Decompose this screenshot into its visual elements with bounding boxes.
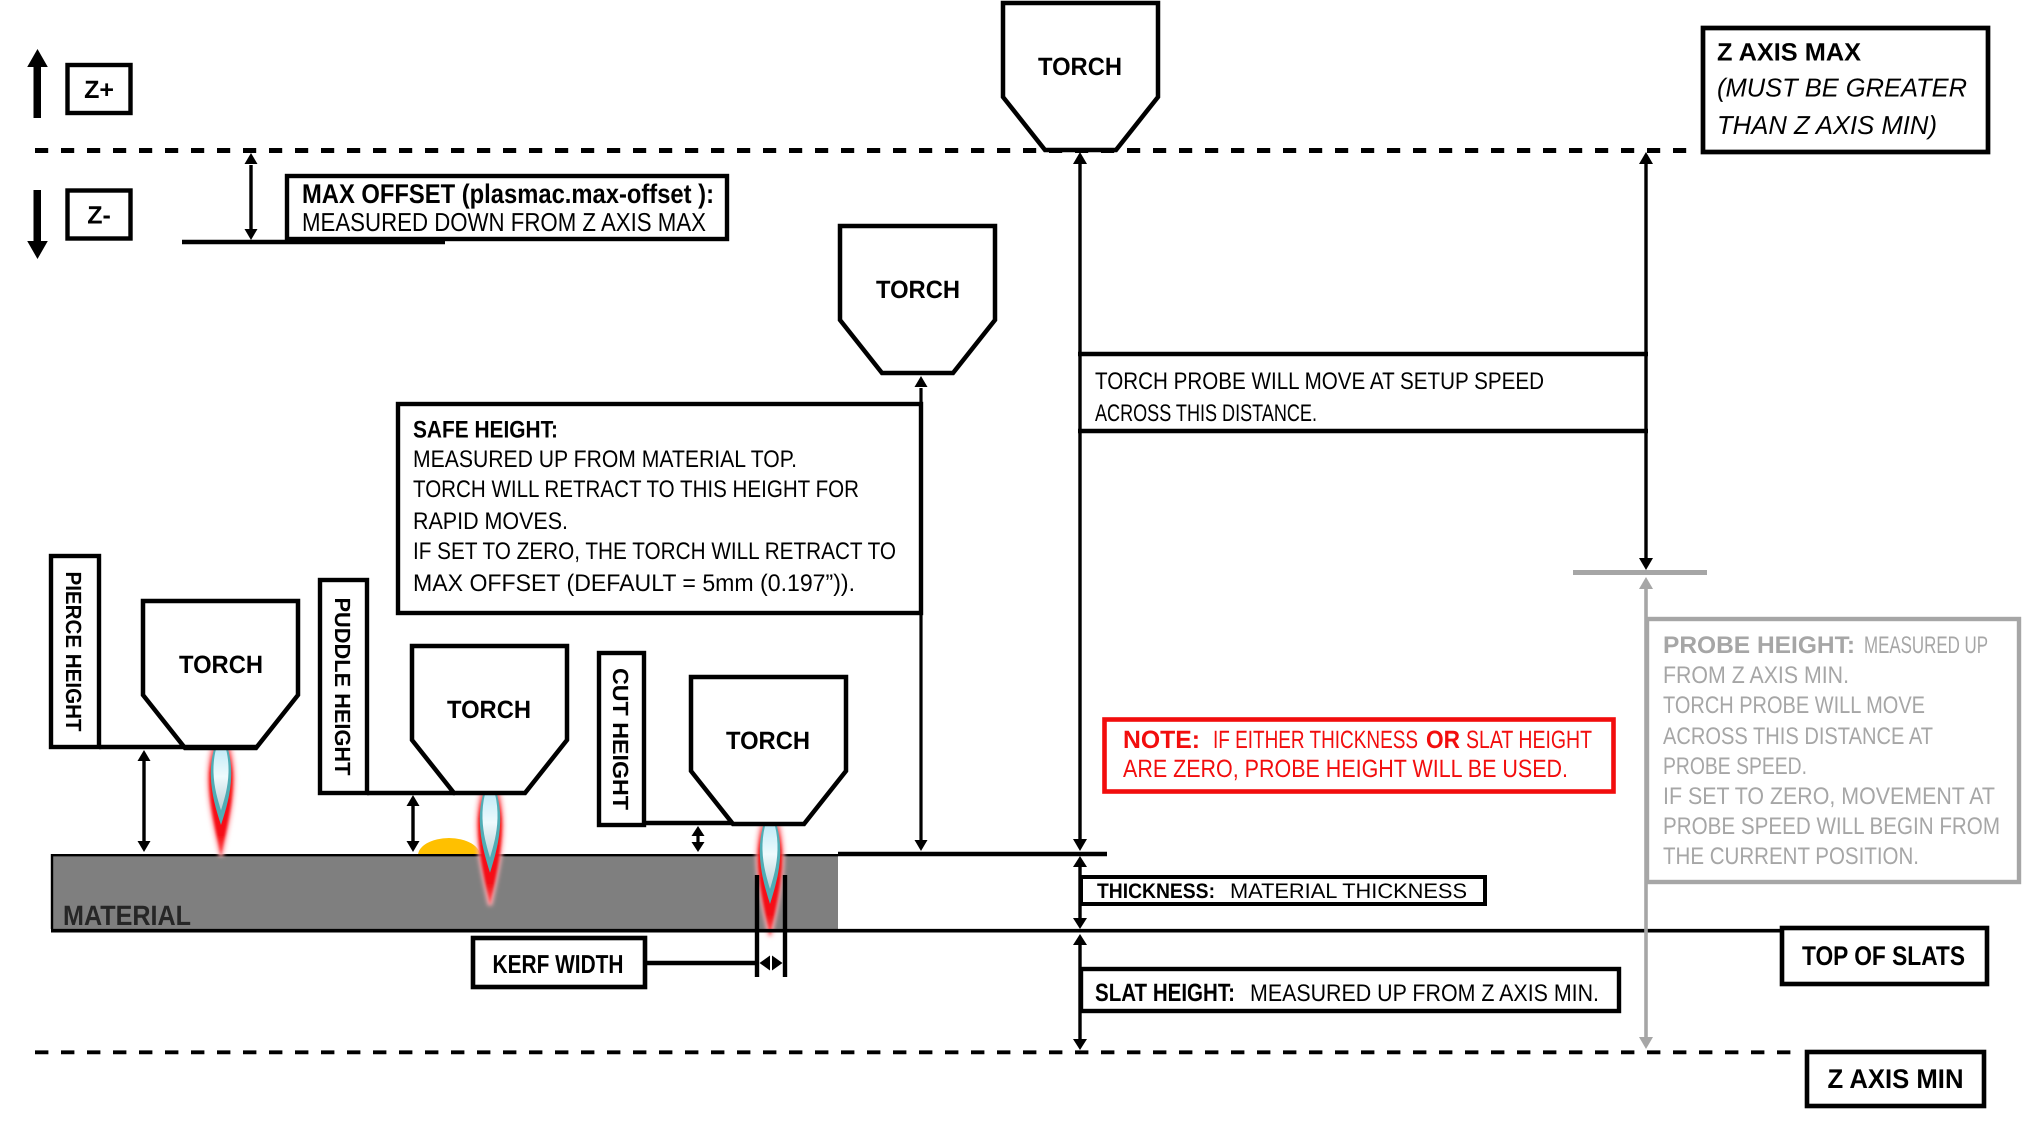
svg-text:TOP OF SLATS: TOP OF SLATS (1802, 941, 1965, 971)
svg-text:ACROSS THIS DISTANCE.: ACROSS THIS DISTANCE. (1095, 400, 1317, 427)
svg-text:FROM Z AXIS MIN.: FROM Z AXIS MIN. (1663, 662, 1849, 689)
svg-text:IF SET TO ZERO, MOVEMENT AT: IF SET TO ZERO, MOVEMENT AT (1663, 783, 1995, 810)
svg-text:SLAT HEIGHT:MEASURED UP FROM Z: SLAT HEIGHT:MEASURED UP FROM Z AXIS MIN. (1095, 979, 1599, 1007)
svg-text:PROBE SPEED WILL BEGIN FROM: PROBE SPEED WILL BEGIN FROM (1663, 813, 2000, 840)
svg-text:PROBE HEIGHT:MEASURED UP: PROBE HEIGHT:MEASURED UP (1663, 632, 1988, 659)
svg-text:PUDDLE HEIGHT: PUDDLE HEIGHT (330, 598, 355, 777)
svg-text:NOTE:IF EITHER THICKNESSORSLAT: NOTE:IF EITHER THICKNESSORSLAT HEIGHT (1123, 726, 1592, 754)
svg-text:RAPID MOVES.: RAPID MOVES. (413, 508, 568, 535)
svg-text:MATERIAL: MATERIAL (63, 900, 191, 931)
svg-text:IF SET TO ZERO, THE TORCH WILL: IF SET TO ZERO, THE TORCH WILL RETRACT T… (413, 538, 896, 565)
svg-text:TORCH PROBE WILL MOVE AT SETUP: TORCH PROBE WILL MOVE AT SETUP SPEED (1095, 368, 1544, 395)
svg-text:ACROSS THIS DISTANCE AT: ACROSS THIS DISTANCE AT (1663, 723, 1933, 750)
svg-text:TORCH: TORCH (179, 651, 263, 679)
svg-text:MEASURED UP FROM MATERIAL TOP.: MEASURED UP FROM MATERIAL TOP. (413, 446, 797, 473)
svg-text:PIERCE HEIGHT: PIERCE HEIGHT (61, 572, 86, 733)
svg-text:TORCH PROBE WILL MOVE: TORCH PROBE WILL MOVE (1663, 692, 1925, 719)
svg-text:TORCH WILL RETRACT TO THIS HEI: TORCH WILL RETRACT TO THIS HEIGHT FOR (413, 476, 859, 503)
svg-text:THICKNESS:MATERIAL THICKNESS: THICKNESS:MATERIAL THICKNESS (1097, 880, 1467, 903)
svg-text:MEASURED DOWN FROM Z AXIS MAX: MEASURED DOWN FROM Z AXIS MAX (302, 207, 706, 237)
svg-text:TORCH: TORCH (876, 276, 960, 304)
svg-text:TORCH: TORCH (1038, 53, 1122, 81)
svg-text:KERF WIDTH: KERF WIDTH (493, 949, 624, 979)
svg-text:CUT HEIGHT: CUT HEIGHT (608, 668, 633, 811)
svg-text:Z AXIS MIN: Z AXIS MIN (1828, 1064, 1964, 1094)
svg-text:MAX OFFSET (DEFAULT = 5mm (0.1: MAX OFFSET (DEFAULT = 5mm (0.197”)). (413, 570, 855, 597)
svg-text:ARE ZERO, PROBE HEIGHT WILL BE: ARE ZERO, PROBE HEIGHT WILL BE USED. (1123, 755, 1568, 783)
svg-text:THE CURRENT POSITION.: THE CURRENT POSITION. (1663, 843, 1919, 870)
svg-text:MAX OFFSET (plasmac.max-offset: MAX OFFSET (plasmac.max-offset ): (302, 179, 714, 209)
svg-text:Z+: Z+ (84, 76, 114, 104)
svg-text:TORCH: TORCH (447, 696, 531, 724)
svg-text:Z-: Z- (87, 202, 111, 230)
svg-text:SAFE HEIGHT:: SAFE HEIGHT: (413, 417, 558, 444)
svg-text:PROBE SPEED.: PROBE SPEED. (1663, 753, 1807, 780)
svg-text:Z AXIS MAX: Z AXIS MAX (1717, 39, 1861, 67)
svg-text:TORCH: TORCH (726, 727, 810, 755)
svg-text:(MUST BE GREATER: (MUST BE GREATER (1717, 73, 1967, 103)
svg-text:THAN Z AXIS MIN): THAN Z AXIS MIN) (1717, 110, 1937, 140)
